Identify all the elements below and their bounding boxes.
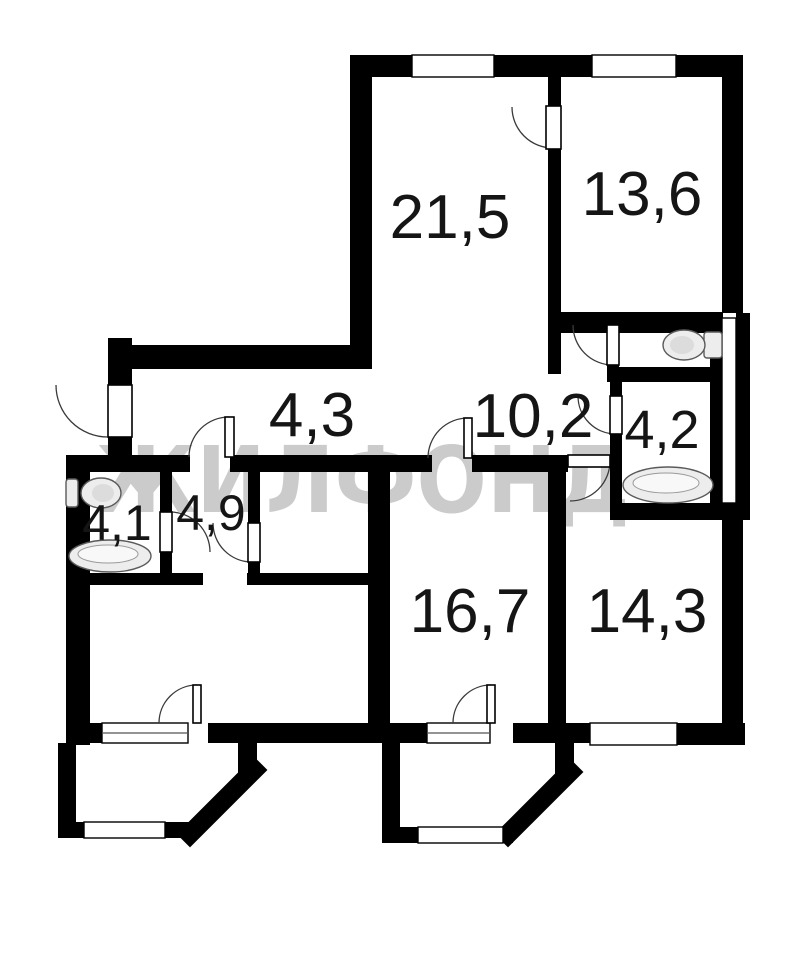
wall xyxy=(368,455,390,723)
toilet-bowl-inner xyxy=(670,336,694,354)
room-label-living-room: 21,5 xyxy=(390,183,511,252)
door-leaf xyxy=(464,418,472,458)
vent-shaft xyxy=(722,318,736,503)
wall xyxy=(548,148,561,374)
bathtub-right-bathroom xyxy=(623,467,713,503)
toilet-wc xyxy=(663,330,722,360)
wall xyxy=(736,313,750,503)
wall xyxy=(108,345,372,369)
wall xyxy=(160,472,172,512)
wall xyxy=(607,312,619,326)
wall xyxy=(513,723,590,743)
balcony-glazing xyxy=(84,822,165,838)
wall xyxy=(548,455,566,723)
wall xyxy=(66,573,203,585)
floor-plan-page: ЖИЛФОНД xyxy=(0,0,789,960)
door-leaf xyxy=(160,512,172,552)
door-leaf xyxy=(607,325,619,365)
balcony-glazing xyxy=(418,827,503,843)
balcony-door-leaf xyxy=(487,685,495,723)
toilet-tank xyxy=(704,332,722,358)
wall xyxy=(350,55,372,369)
wall xyxy=(108,338,132,385)
wall xyxy=(66,723,102,743)
room-label-corridor: 4,3 xyxy=(269,381,355,450)
door-leaf xyxy=(225,417,234,457)
wall xyxy=(230,455,432,472)
balcony-wall xyxy=(58,822,84,838)
balcony-wall xyxy=(238,743,257,776)
door-leaf xyxy=(546,106,561,149)
room-label-room-bottom-right: 14,3 xyxy=(587,577,708,646)
door-leaf xyxy=(568,455,610,467)
window xyxy=(592,55,676,77)
door-leaf xyxy=(248,523,260,562)
entrance-door-leaf xyxy=(108,385,132,437)
balcony-chamfer-wall xyxy=(508,772,570,834)
room-label-room-bottom-middle: 16,7 xyxy=(410,577,531,646)
balcony-chamfer-wall xyxy=(190,770,254,834)
toilet-tank xyxy=(66,479,78,507)
wall xyxy=(610,382,622,396)
room-label-inner-hall: 4,9 xyxy=(176,485,246,541)
room-label-hallway: 10,2 xyxy=(473,382,594,451)
window xyxy=(412,55,494,77)
wall xyxy=(610,432,622,503)
wall xyxy=(677,723,745,745)
wall xyxy=(722,503,743,745)
balcony-wall xyxy=(382,827,418,843)
balcony-door-swing-arc xyxy=(159,685,197,723)
bathtub-basin xyxy=(633,473,699,493)
floor-plan-canvas: ЖИЛФОНД xyxy=(0,0,789,960)
wall xyxy=(208,723,427,743)
window xyxy=(590,723,677,745)
wall xyxy=(548,77,561,108)
room-label-room-top-right: 13,6 xyxy=(582,160,703,229)
wall xyxy=(722,55,743,313)
wall xyxy=(558,312,723,333)
balcony-door-swing-arc xyxy=(453,685,491,723)
balcony-door-leaf xyxy=(193,685,201,723)
room-label-bathroom-right: 4,2 xyxy=(624,400,699,460)
room-label-bathroom-left: 4,1 xyxy=(82,495,152,551)
balcony-wall xyxy=(555,743,574,776)
wall xyxy=(248,472,260,523)
door-leaf xyxy=(610,396,622,434)
wall xyxy=(494,55,592,77)
